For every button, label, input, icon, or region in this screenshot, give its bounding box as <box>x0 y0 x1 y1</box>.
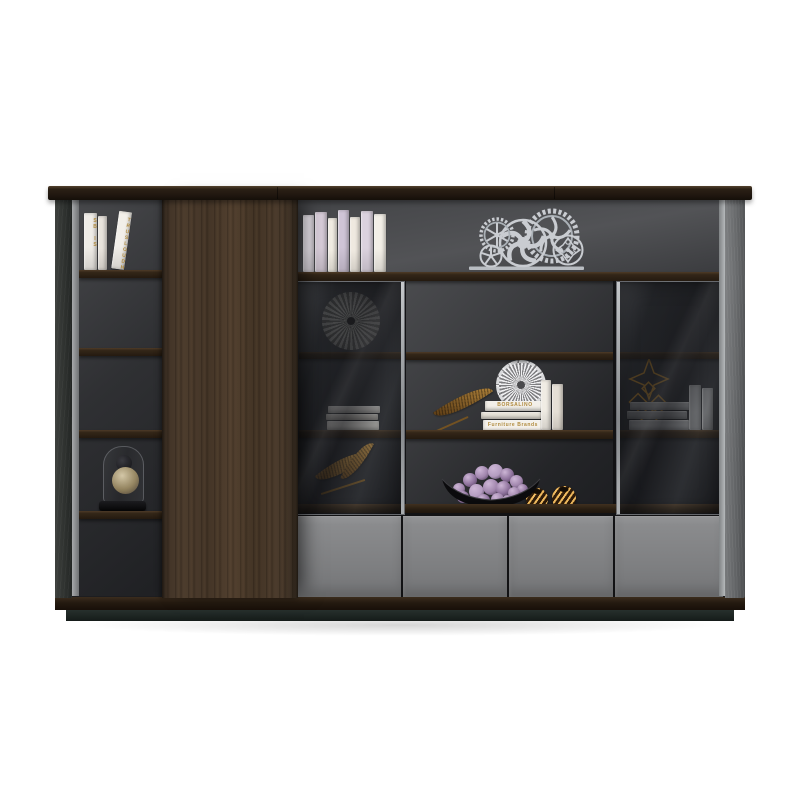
glass-dome <box>103 446 144 503</box>
left-side-panel <box>55 198 72 598</box>
glass-door-right-handle[interactable] <box>617 282 620 514</box>
wood-sliding-door[interactable] <box>162 194 298 598</box>
left-shelf-board-4 <box>79 511 163 519</box>
gear-sculpture-icon <box>463 199 590 272</box>
gear-sculpture <box>463 199 590 272</box>
drawer-front-1[interactable] <box>297 516 401 597</box>
book-spine <box>552 384 563 430</box>
book-spine-text: BORSALINO <box>485 401 545 410</box>
top-board-seam-2 <box>554 187 555 199</box>
middle-shelf-board-2 <box>405 430 615 439</box>
book-spine: SB IS <box>84 213 97 270</box>
middle-standing-books <box>541 380 565 430</box>
book-spine: TRUSLOUDH <box>111 211 132 270</box>
cloche-base <box>99 501 146 511</box>
book-spine <box>374 214 386 272</box>
book-spine <box>361 211 373 272</box>
right-side-panel <box>725 198 745 598</box>
top-row-books <box>303 210 387 272</box>
book-spine <box>338 210 349 272</box>
drawer-front-4[interactable] <box>615 516 723 597</box>
left-top-books: SB ISTRUSLOUDH <box>84 210 156 270</box>
top-board-seam-1 <box>277 187 278 199</box>
base-plinth <box>55 597 745 610</box>
book-spine-text: SB IS <box>84 218 97 248</box>
drawer-front-3[interactable] <box>509 516 613 597</box>
book-spine <box>328 218 337 272</box>
book-spine-text: TRUSLOUDH <box>111 216 131 271</box>
book-spine <box>303 215 314 272</box>
drawer-row <box>297 513 723 598</box>
stacked-book-spine: BORSALINO <box>485 401 545 411</box>
base-recess <box>66 610 734 621</box>
top-board <box>48 186 752 200</box>
glass-door-left[interactable] <box>297 281 405 515</box>
book-spine <box>541 380 551 430</box>
glass-door-left-handle[interactable] <box>401 282 404 514</box>
middle-shelf-board-1 <box>405 352 615 360</box>
left-inner-edge <box>72 198 79 596</box>
glass-door-right[interactable] <box>616 281 724 515</box>
drawer-front-2[interactable] <box>403 516 507 597</box>
book-spine <box>350 217 360 272</box>
book-spine <box>98 216 107 270</box>
left-shelf-board-1 <box>79 270 163 278</box>
middle-book-stack: BORSALINOFurniture Brands <box>481 401 541 432</box>
product-photo-canvas: SB ISTRUSLOUDH <box>0 0 800 800</box>
left-shelf-board-3 <box>79 430 163 438</box>
left-shelf-board-2 <box>79 348 163 356</box>
stacked-book-spine <box>481 412 541 420</box>
book-spine <box>315 212 327 272</box>
top-row-shelf-board <box>297 272 723 281</box>
